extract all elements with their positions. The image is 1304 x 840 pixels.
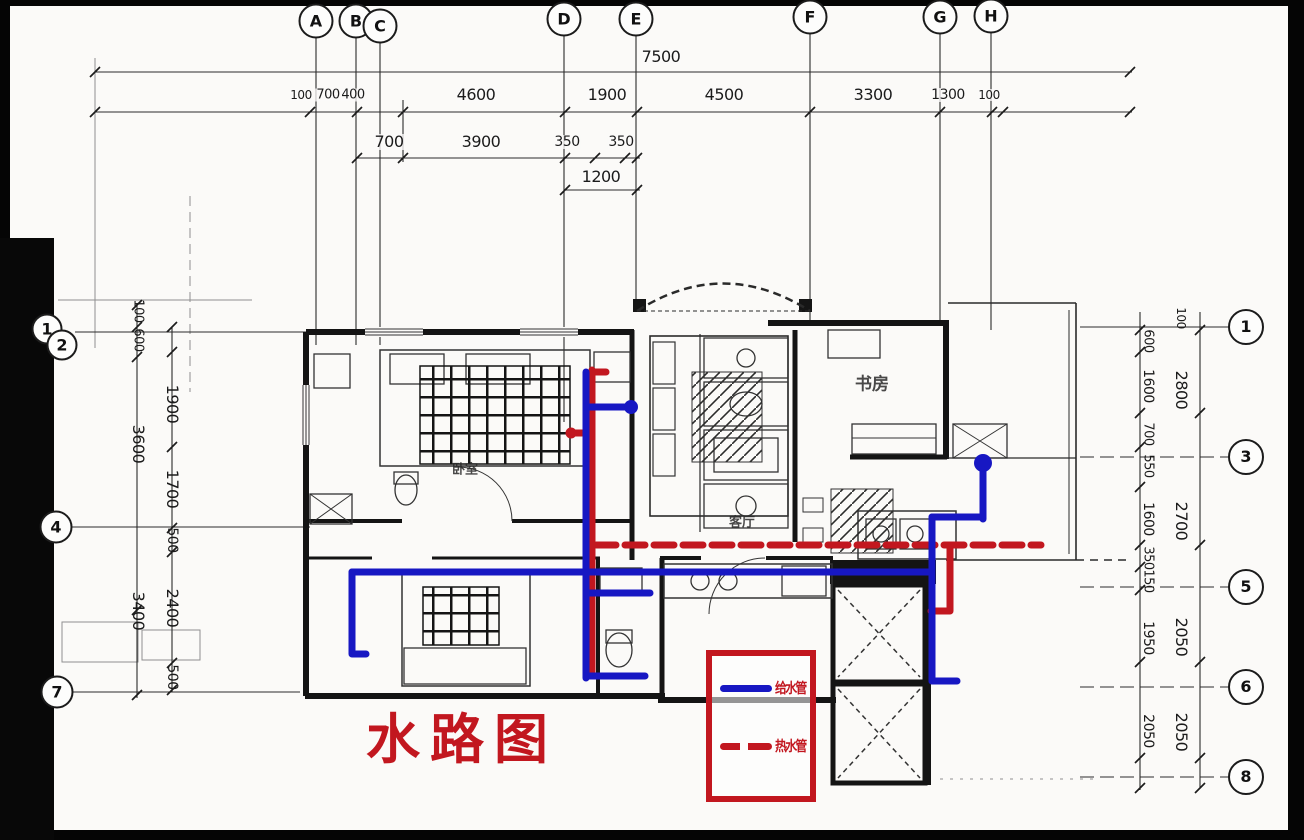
drawing-title: 水路图 xyxy=(366,708,558,773)
hot-water-line-sample xyxy=(720,743,772,750)
bed-lattice-and-hatch xyxy=(420,366,893,645)
hot-water-pipe xyxy=(566,370,1042,676)
cold-water-line-sample xyxy=(720,685,772,692)
pipe-legend: 给水管 热水管 xyxy=(706,650,816,802)
dimension-ticks xyxy=(90,67,1205,793)
blueprint-canvas: 7500100700400460019004500330013001007003… xyxy=(0,0,1304,840)
floor-plan-drawing xyxy=(0,0,1304,840)
legend-label-hot: 热水管 xyxy=(775,736,806,756)
legend-label-cold: 给水管 xyxy=(775,678,806,698)
